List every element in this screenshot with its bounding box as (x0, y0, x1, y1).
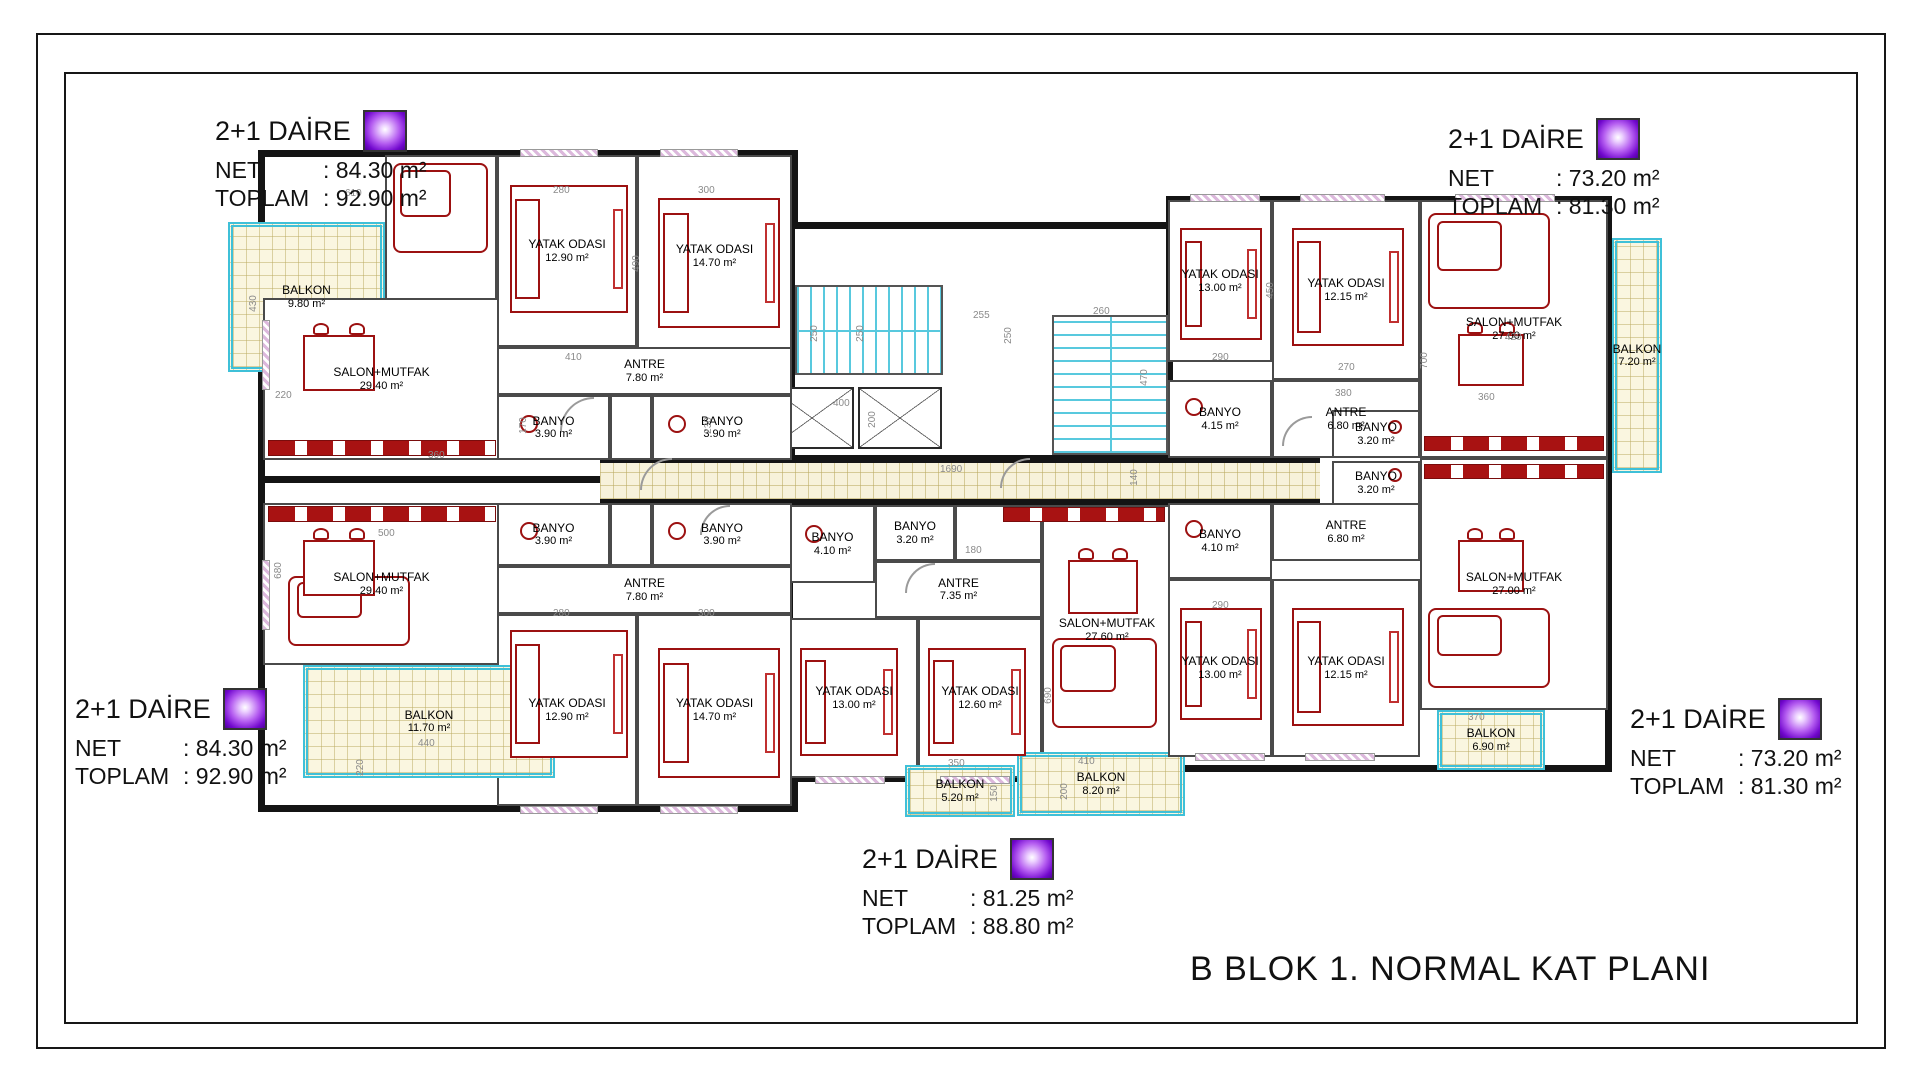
room-area: 14.70 m² (693, 711, 736, 723)
room-antre-bl: ANTRE7.80 m² (497, 566, 792, 614)
room-name: YATAK ODASI (528, 697, 605, 710)
room-x3 (610, 503, 652, 566)
room-name: BANYO (811, 531, 853, 544)
room-label: BANYO4.15 m² (1199, 406, 1241, 432)
room-label: BANYO3.90 m² (532, 522, 574, 548)
dimension-text: 250 (809, 325, 820, 342)
room-name: YATAK ODASI (941, 685, 1018, 698)
room-banyo-bc-b: BANYO3.20 m² (875, 505, 955, 561)
sofa-icon (1428, 608, 1550, 688)
room-area: 13.00 m² (832, 699, 875, 711)
toplam-value: : 81.30 m² (1556, 192, 1660, 220)
room-area: 13.00 m² (1198, 282, 1241, 294)
room-area: 6.80 m² (1327, 533, 1364, 545)
room-area: 4.15 m² (1201, 420, 1238, 432)
room-name: YATAK ODASI (1307, 277, 1384, 290)
room-antre-br: ANTRE6.80 m² (1272, 503, 1420, 561)
room-label: YATAK ODASI12.60 m² (941, 685, 1018, 711)
dimension-text: 680 (273, 562, 284, 579)
room-name: BALKON (1467, 727, 1516, 740)
kitchen-counter-icon (268, 506, 496, 522)
plan-title: B BLOK 1. NORMAL KAT PLANI (1190, 950, 1710, 989)
room-label: BANYO3.20 m² (1355, 421, 1397, 447)
dimension-text: 690 (1043, 687, 1054, 704)
dimension-text: 280 (553, 608, 570, 619)
room-label: BANYO3.20 m² (894, 520, 936, 546)
party-wall (263, 476, 600, 483)
dimension-text: 200 (1059, 783, 1070, 800)
room-label: BALKON6.90 m² (1467, 727, 1516, 753)
room-x2 (610, 395, 652, 460)
room-area: 7.80 m² (626, 591, 663, 603)
room-label: YATAK ODASI12.15 m² (1307, 277, 1384, 303)
room-area: 12.90 m² (545, 252, 588, 264)
room-area: 11.70 m² (408, 722, 451, 734)
unit-info-top-right: 2+1 DAİRE NET: 73.20 m² TOPLAM: 81.30 m² (1448, 118, 1660, 220)
window-icon (660, 806, 738, 814)
room-name: BANYO (532, 522, 574, 535)
net-label: NET (1448, 164, 1556, 192)
toplam-value: : 81.30 m² (1738, 772, 1842, 800)
room-name: ANTRE (624, 577, 665, 590)
room-banyo-bl-a: BANYO3.90 m² (497, 503, 610, 566)
dimension-text: 300 (698, 185, 715, 196)
dimension-text: 420 (1505, 332, 1522, 343)
dimension-text: 290 (1212, 352, 1229, 363)
room-area: 3.90 m² (535, 535, 572, 547)
room-area: 12.60 m² (958, 699, 1001, 711)
room-area: 29.40 m² (360, 585, 403, 597)
toplam-label: TOPLAM (75, 762, 183, 790)
room-area: 7.35 m² (940, 590, 977, 602)
dimension-text: 270 (1338, 362, 1355, 373)
unit-type-label: 2+1 DAİRE (862, 844, 998, 875)
room-name: BANYO (894, 520, 936, 533)
floor-plan-canvas: BALKON9.80 m²SALON+MUTFAK29.40 m²YATAK O… (0, 0, 1920, 1080)
room-label: SALON+MUTFAK29.40 m² (333, 571, 429, 597)
dimension-text: 500 (378, 528, 395, 539)
room-area: 9.80 m² (288, 298, 325, 310)
window-icon (1195, 753, 1265, 761)
dimension-text: 200 (867, 411, 878, 428)
room-name: YATAK ODASI (676, 697, 753, 710)
dimension-text: 470 (1139, 369, 1150, 386)
kitchen-counter-icon (1424, 436, 1604, 451)
toplam-label: TOPLAM (1630, 772, 1738, 800)
room-area: 4.10 m² (814, 545, 851, 557)
toplam-value: : 88.80 m² (970, 912, 1074, 940)
toilet-icon (668, 415, 686, 433)
room-area: 4.10 m² (1201, 542, 1238, 554)
dimension-text: 410 (1078, 756, 1095, 767)
unit-info-top-left: 2+1 DAİRE NET: 84.30 m² TOPLAM: 92.90 m² (215, 110, 427, 212)
window-icon (520, 149, 598, 157)
room-area: 3.90 m² (703, 535, 740, 547)
unit-swatch-icon (223, 688, 267, 730)
dimension-text: 450 (1265, 282, 1276, 299)
room-area: 14.70 m² (693, 257, 736, 269)
net-label: NET (75, 734, 183, 762)
room-area: 3.20 m² (896, 534, 933, 546)
room-area: 29.40 m² (360, 380, 403, 392)
net-value: : 84.30 m² (183, 734, 287, 762)
room-label: ANTRE7.80 m² (624, 577, 665, 603)
dimension-text: 140 (1129, 469, 1140, 486)
balcony-balkon-bc-b: BALKON8.20 m² (1017, 752, 1185, 816)
room-label: SALON+MUTFAK27.00 m² (1466, 571, 1562, 597)
room-label: BALKON5.20 m² (936, 778, 985, 804)
dimension-text: 250 (1003, 327, 1014, 344)
staircase-east (1052, 315, 1168, 455)
unit-info-bottom-left: 2+1 DAİRE NET: 84.30 m² TOPLAM: 92.90 m² (75, 688, 287, 790)
unit-info-bottom-center: 2+1 DAİRE NET: 81.25 m² TOPLAM: 88.80 m² (862, 838, 1074, 940)
room-name: YATAK ODASI (1307, 655, 1384, 668)
dimension-text: 290 (1212, 600, 1229, 611)
room-name: BALKON (405, 709, 454, 722)
toplam-value: : 92.90 m² (183, 762, 287, 790)
room-banyo-br-b: BANYO3.20 m² (1332, 461, 1420, 505)
bed-icon (510, 630, 628, 758)
room-area: 12.15 m² (1324, 669, 1367, 681)
dimension-text: 410 (565, 352, 582, 363)
room-label: BANYO3.90 m² (701, 522, 743, 548)
window-icon (1305, 753, 1375, 761)
dimension-text: 370 (1468, 712, 1485, 723)
unit-swatch-icon (363, 110, 407, 152)
room-area: 12.90 m² (545, 711, 588, 723)
toplam-value: : 92.90 m² (323, 184, 427, 212)
room-name: YATAK ODASI (1181, 655, 1258, 668)
room-label: ANTRE6.80 m² (1326, 519, 1367, 545)
unit-type-label: 2+1 DAİRE (75, 694, 211, 725)
room-area: 13.00 m² (1198, 669, 1241, 681)
kitchen-counter-icon (268, 440, 496, 456)
room-area: 3.20 m² (1357, 435, 1394, 447)
room-label: BALKON9.80 m² (282, 284, 331, 310)
dimension-text: 360 (428, 450, 445, 461)
dimension-text: 440 (418, 738, 435, 749)
room-name: BANYO (1355, 470, 1397, 483)
room-label: BALKON11.70 m² (405, 709, 454, 735)
room-name: ANTRE (1326, 406, 1367, 419)
room-name: BALKON (1613, 343, 1662, 356)
dimension-text: 230 (703, 417, 714, 434)
room-name: BANYO (532, 415, 574, 428)
dimension-text: 360 (1478, 392, 1495, 403)
room-label: YATAK ODASI14.70 m² (676, 243, 753, 269)
room-label: YATAK ODASI13.00 m² (1181, 655, 1258, 681)
room-label: BALKON8.20 m² (1077, 771, 1126, 797)
room-banyo-tr-a: BANYO4.15 m² (1168, 380, 1272, 458)
dimension-text: 1690 (940, 464, 962, 475)
unit-type-label: 2+1 DAİRE (1448, 124, 1584, 155)
dimension-text: 220 (275, 390, 292, 401)
room-name: ANTRE (624, 358, 665, 371)
room-name: SALON+MUTFAK (1466, 571, 1562, 584)
dimension-text: 280 (553, 185, 570, 196)
room-label: YATAK ODASI13.00 m² (1181, 268, 1258, 294)
unit-type-label: 2+1 DAİRE (1630, 704, 1766, 735)
window-icon (1300, 194, 1385, 202)
balcony-balkon-tr: BALKON7.20 m² (1612, 238, 1662, 473)
sofa-icon (1052, 638, 1157, 728)
dimension-text: 380 (1335, 388, 1352, 399)
dimension-text: 220 (355, 759, 366, 776)
dimension-text: 700 (1419, 352, 1430, 369)
room-name: YATAK ODASI (815, 685, 892, 698)
net-value: : 84.30 m² (323, 156, 427, 184)
window-icon (1190, 194, 1260, 202)
room-area: 12.15 m² (1324, 291, 1367, 303)
net-value: : 73.20 m² (1738, 744, 1842, 772)
dimension-text: 255 (973, 310, 990, 321)
window-icon (262, 560, 270, 630)
room-name: SALON+MUTFAK (1466, 316, 1562, 329)
toplam-label: TOPLAM (862, 912, 970, 940)
net-value: : 81.25 m² (970, 884, 1074, 912)
room-area: 27.00 m² (1492, 585, 1535, 597)
net-label: NET (215, 156, 323, 184)
room-label: SALON+MUTFAK27.60 m² (1059, 617, 1155, 643)
room-name: BALKON (282, 284, 331, 297)
room-name: BANYO (1355, 421, 1397, 434)
balcony-balkon-br: BALKON6.90 m² (1437, 710, 1545, 770)
dining-table-icon (1068, 560, 1138, 614)
room-banyo-bc-a: BANYO4.10 m² (790, 505, 875, 583)
net-label: NET (1630, 744, 1738, 772)
dimension-text: 170 (518, 417, 529, 434)
dimension-text: 490 (631, 255, 642, 272)
room-name: BANYO (701, 522, 743, 535)
room-antre-tl: ANTRE7.80 m² (497, 347, 792, 395)
room-label: BANYO3.20 m² (1355, 470, 1397, 496)
net-value: : 73.20 m² (1556, 164, 1660, 192)
room-label: YATAK ODASI12.90 m² (528, 238, 605, 264)
room-name: BALKON (1077, 771, 1126, 784)
window-icon (262, 320, 270, 390)
room-area: 8.20 m² (1082, 785, 1119, 797)
window-icon (815, 776, 885, 784)
room-name: BANYO (1199, 406, 1241, 419)
room-name: ANTRE (1326, 519, 1367, 532)
room-name: SALON+MUTFAK (333, 366, 429, 379)
unit-swatch-icon (1596, 118, 1640, 160)
dimension-text: 430 (248, 295, 259, 312)
room-label: BANYO3.90 m² (532, 415, 574, 441)
unit-swatch-icon (1010, 838, 1054, 880)
dimension-text: 180 (965, 545, 982, 556)
sofa-icon (1428, 213, 1550, 309)
toplam-label: TOPLAM (1448, 192, 1556, 220)
kitchen-counter-icon (1003, 507, 1165, 522)
window-icon (660, 149, 738, 157)
room-area: 6.90 m² (1472, 741, 1509, 753)
room-banyo-br-a: BANYO4.10 m² (1168, 503, 1272, 579)
unit-type-label: 2+1 DAİRE (215, 116, 351, 147)
unit-swatch-icon (1778, 698, 1822, 740)
net-label: NET (862, 884, 970, 912)
room-label: YATAK ODASI14.70 m² (676, 697, 753, 723)
room-label: ANTRE7.80 m² (624, 358, 665, 384)
room-label: YATAK ODASI12.90 m² (528, 697, 605, 723)
room-label: ANTRE7.35 m² (938, 577, 979, 603)
room-label: BALKON7.20 m² (1613, 343, 1662, 369)
dimension-text: 350 (948, 758, 965, 769)
room-name: YATAK ODASI (528, 238, 605, 251)
room-label: BANYO4.10 m² (811, 531, 853, 557)
room-name: BALKON (936, 778, 985, 791)
room-area: 5.20 m² (941, 792, 978, 804)
room-label: BANYO4.10 m² (1199, 528, 1241, 554)
room-area: 3.20 m² (1357, 484, 1394, 496)
room-label: YATAK ODASI12.15 m² (1307, 655, 1384, 681)
dimension-text: 150 (989, 785, 1000, 802)
room-name: ANTRE (938, 577, 979, 590)
room-name: BANYO (1199, 528, 1241, 541)
kitchen-counter-icon (1424, 464, 1604, 479)
dimension-text: 400 (833, 398, 850, 409)
unit-info-bottom-right: 2+1 DAİRE NET: 73.20 m² TOPLAM: 81.30 m² (1630, 698, 1842, 800)
room-area: 7.80 m² (626, 372, 663, 384)
room-area: 3.90 m² (535, 428, 572, 440)
toplam-label: TOPLAM (215, 184, 323, 212)
room-antre-bc: ANTRE7.35 m² (875, 561, 1042, 618)
room-label: SALON+MUTFAK29.40 m² (333, 366, 429, 392)
room-name: SALON+MUTFAK (1059, 617, 1155, 630)
toilet-icon (668, 522, 686, 540)
room-area: 27.60 m² (1085, 631, 1128, 643)
room-label: YATAK ODASI13.00 m² (815, 685, 892, 711)
room-salon-tl: SALON+MUTFAK29.40 m² (263, 298, 500, 460)
dimension-text: 260 (1093, 306, 1110, 317)
dimension-text: 250 (855, 325, 866, 342)
room-name: YATAK ODASI (676, 243, 753, 256)
room-name: SALON+MUTFAK (333, 571, 429, 584)
room-name: YATAK ODASI (1181, 268, 1258, 281)
dimension-text: 300 (698, 608, 715, 619)
room-area: 7.20 m² (1618, 356, 1655, 368)
window-icon (520, 806, 598, 814)
